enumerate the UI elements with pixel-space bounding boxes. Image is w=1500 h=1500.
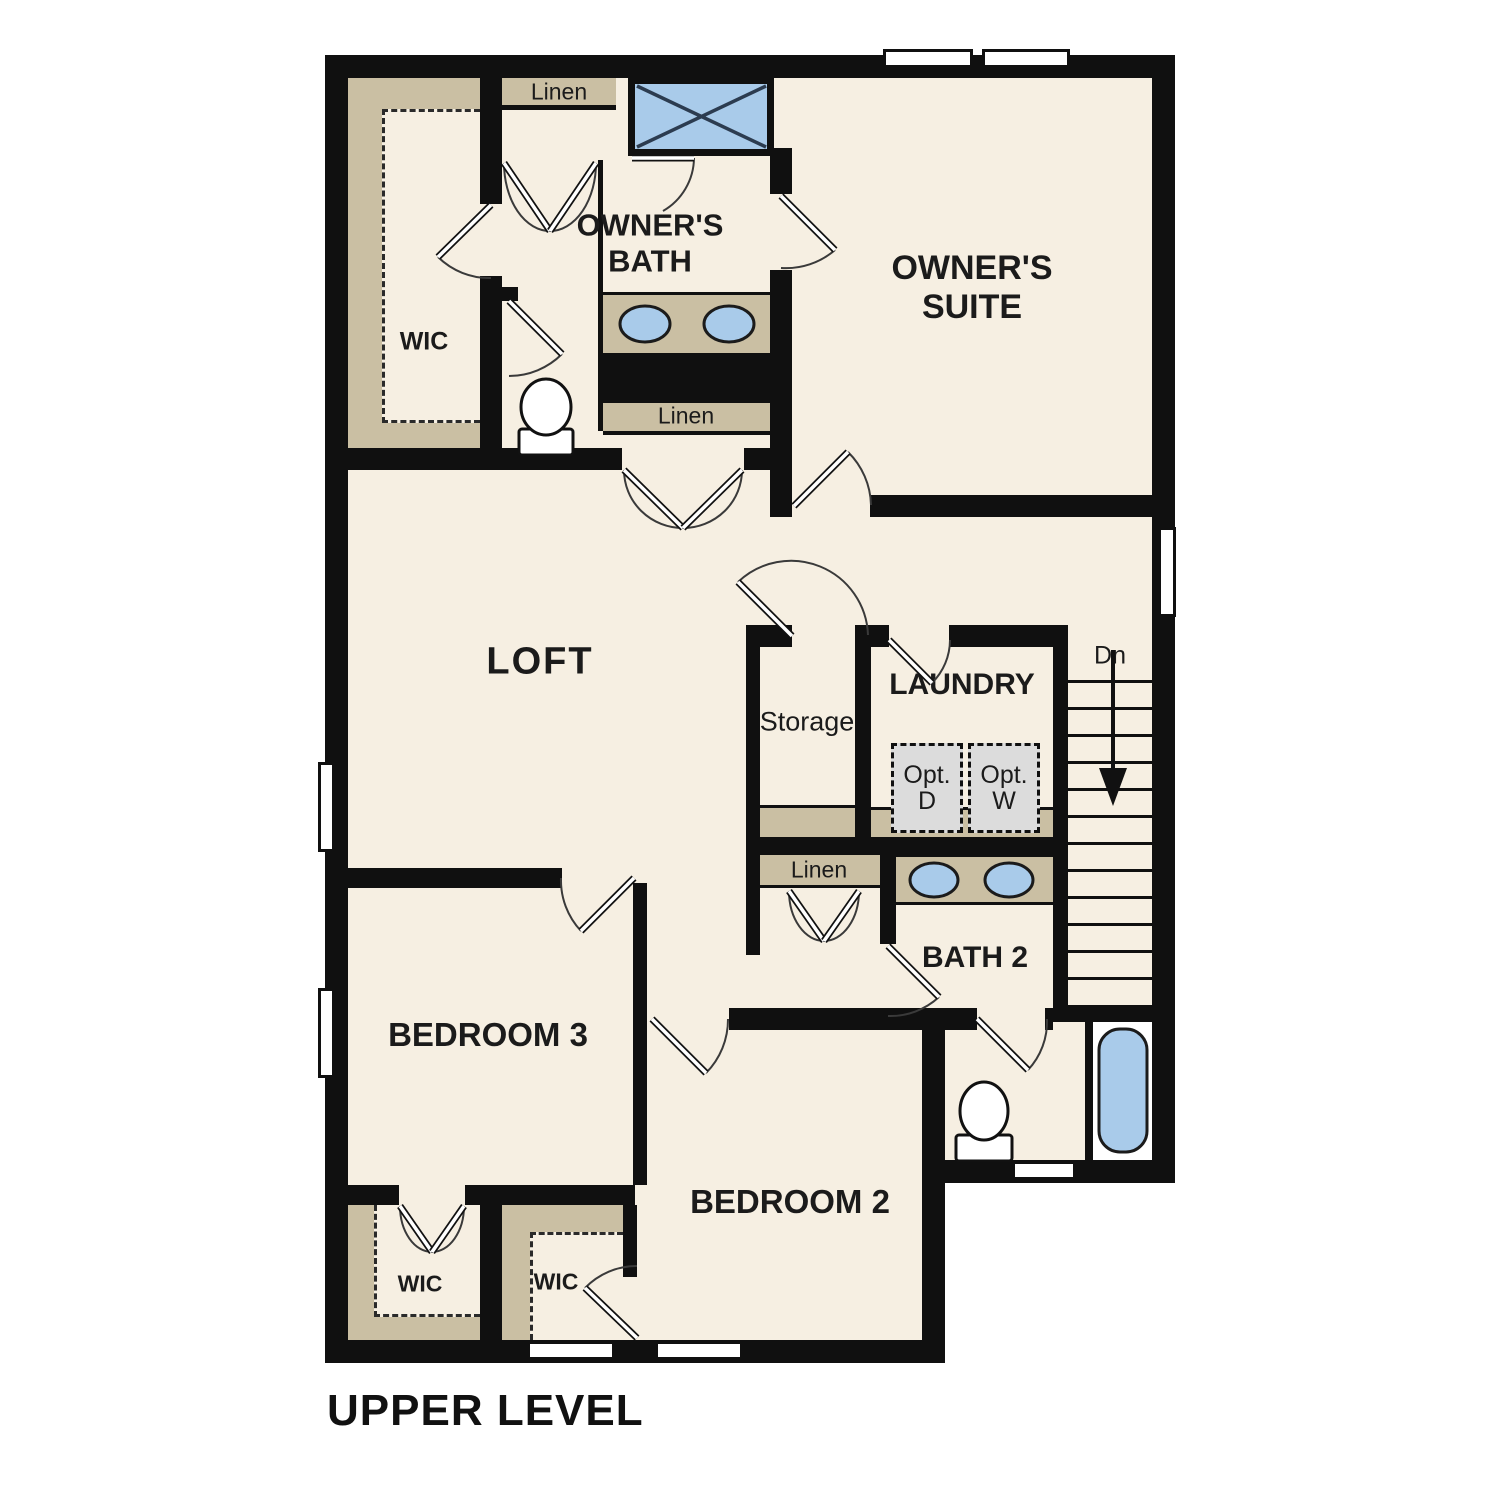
closet-label-wic-bedroom3: WIC	[398, 1271, 443, 1298]
stairs-down-label: Dn	[1094, 642, 1126, 671]
plan-title: UPPER LEVEL	[327, 1386, 644, 1436]
floor-cutout	[945, 1183, 1175, 1363]
closet-label-linen-hall: Linen	[658, 403, 714, 430]
opt-dryer-line1: Opt.	[903, 762, 950, 788]
closet-label-linen-bath: Linen	[531, 79, 587, 106]
wall	[633, 883, 647, 1185]
stair-tread	[1068, 923, 1152, 926]
wall	[347, 868, 562, 888]
wall	[603, 431, 770, 435]
stair-tread	[1068, 869, 1152, 872]
wall	[880, 843, 1055, 857]
shelf-area	[896, 857, 1053, 904]
stair-tread	[1068, 788, 1152, 791]
stair-tread	[1068, 977, 1152, 980]
wall	[1053, 1005, 1175, 1022]
optional-washer-box: Opt. W	[968, 743, 1040, 833]
wall	[480, 1195, 502, 1340]
wall	[949, 625, 1068, 647]
window	[318, 762, 335, 852]
wall	[1045, 1008, 1053, 1030]
wall	[746, 852, 882, 855]
closet-interior	[374, 1205, 480, 1317]
room-label-bedroom2: BEDROOM 2	[690, 1183, 890, 1221]
wall	[729, 1008, 922, 1030]
wall	[603, 353, 770, 399]
wall	[502, 105, 616, 110]
window	[1012, 1161, 1076, 1180]
opt-dryer-line2: D	[918, 788, 936, 814]
room-label-bedroom3: BEDROOM 3	[388, 1016, 588, 1054]
wall	[623, 1205, 637, 1277]
stair-tread	[1068, 680, 1152, 683]
room-label-bath2: BATH 2	[900, 941, 1050, 976]
wall	[347, 1185, 399, 1205]
optional-dryer-box: Opt. D	[891, 743, 963, 833]
wall	[480, 77, 502, 204]
shower-icon	[628, 77, 774, 156]
wall	[896, 902, 1053, 905]
stair-tread	[1068, 761, 1152, 764]
wall	[746, 625, 792, 647]
closet-label-wic-owners: WIC	[400, 328, 449, 357]
wall	[855, 625, 871, 855]
wall	[945, 1008, 977, 1030]
wall	[760, 805, 855, 808]
closet-interior	[382, 109, 480, 423]
stair-tread	[1068, 896, 1152, 899]
window	[883, 49, 973, 68]
window	[982, 49, 1070, 68]
stair-tread	[1068, 815, 1152, 818]
closet-label-linen-loft: Linen	[791, 857, 847, 884]
wall	[922, 1008, 945, 1363]
wall	[855, 625, 889, 647]
wall	[746, 837, 855, 853]
wall	[746, 885, 882, 888]
stair-tread	[1068, 734, 1152, 737]
wall	[870, 495, 1152, 517]
room-label-loft: LOFT	[486, 641, 593, 684]
closet-label-wic-bedroom2: WIC	[534, 1269, 579, 1296]
wall	[325, 55, 348, 1363]
window	[1158, 527, 1176, 617]
room-label-owners-bath: OWNER'S BATH	[535, 207, 765, 278]
wall	[500, 287, 518, 301]
opt-washer-line2: W	[992, 788, 1016, 814]
wall	[1085, 1022, 1093, 1160]
wall	[880, 843, 896, 944]
window	[527, 1341, 615, 1360]
room-label-storage: Storage	[760, 707, 855, 738]
wall	[770, 270, 792, 517]
shelf-area	[760, 808, 855, 837]
wall	[1053, 625, 1068, 1010]
wall	[325, 1340, 945, 1363]
wall	[603, 292, 770, 295]
floor-plan-upper-level: Opt. D Opt. W LOFT OWNER'S BATH OWNER'S …	[0, 0, 1500, 1500]
window	[318, 988, 335, 1078]
stair-tread	[1068, 707, 1152, 710]
floor-cutout	[1093, 1022, 1152, 1160]
opt-washer-line1: Opt.	[980, 762, 1027, 788]
room-label-owners-suite: OWNER'S SUITE	[837, 249, 1107, 327]
wall	[347, 448, 622, 470]
stair-tread	[1068, 950, 1152, 953]
wall	[746, 625, 760, 955]
shelf-area	[603, 295, 770, 353]
stair-tread	[1068, 842, 1152, 845]
window	[655, 1341, 743, 1360]
wall	[480, 276, 502, 470]
room-label-laundry: LAUNDRY	[889, 668, 1035, 702]
